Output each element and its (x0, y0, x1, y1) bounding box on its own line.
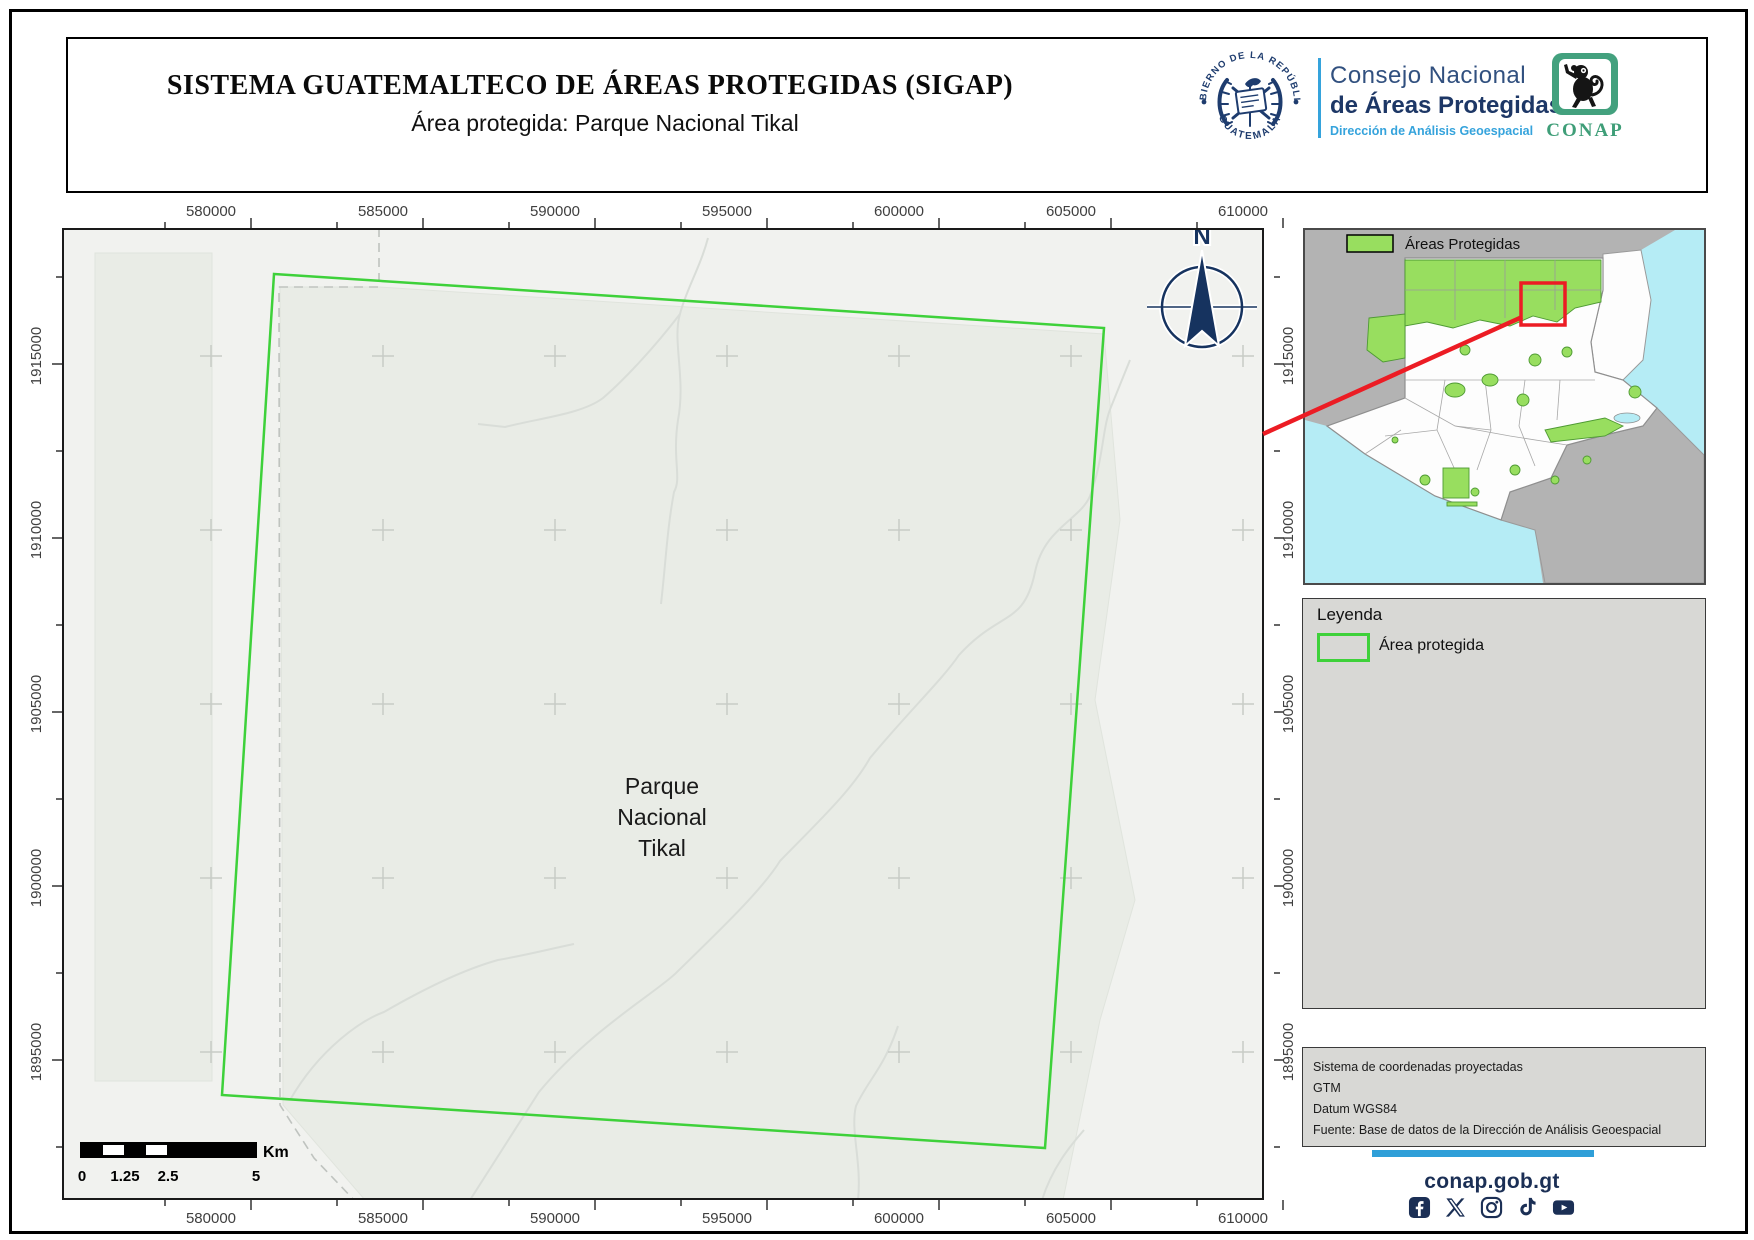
info-line: GTM (1313, 1078, 1705, 1099)
y-axis-label: 1900000 (28, 838, 44, 918)
y-axis-label-right: 1895000 (1280, 1012, 1296, 1092)
legend-item-label: Área protegida (1379, 637, 1484, 655)
info-line: Fuente: Base de datos de la Dirección de… (1313, 1120, 1705, 1141)
logo-divider (1318, 58, 1321, 138)
axis-ticks (40, 200, 1290, 1230)
youtube-icon[interactable] (1552, 1196, 1575, 1219)
website-link[interactable]: conap.gob.gt (1382, 1170, 1602, 1194)
x-axis-label-bottom: 590000 (515, 1210, 595, 1226)
x-axis-label-bottom: 610000 (1203, 1210, 1283, 1226)
org-name-line1: Consejo Nacional (1330, 62, 1526, 90)
x-axis-label: 605000 (1031, 203, 1111, 219)
x-axis-label-bottom: 605000 (1031, 1210, 1111, 1226)
inset-legend-label: Áreas Protegidas (1405, 236, 1520, 253)
coordinate-system-info: Sistema de coordenadas proyectadas GTM D… (1302, 1047, 1706, 1147)
page-title: SISTEMA GUATEMALTECO DE ÁREAS PROTEGIDAS… (70, 70, 1110, 102)
org-name-line2: de Áreas Protegidas (1330, 92, 1562, 120)
y-axis-label-right: 1905000 (1280, 664, 1296, 744)
org-subunit: Dirección de Análisis Geoespacial (1330, 124, 1533, 138)
info-line: Sistema de coordenadas proyectadas (1313, 1057, 1705, 1078)
y-axis-label-right: 1910000 (1280, 490, 1296, 570)
inset-legend-swatch (1347, 235, 1393, 252)
x-axis-label-bottom: 595000 (687, 1210, 767, 1226)
locator-leader-line (1245, 300, 1545, 450)
x-axis-label: 600000 (859, 203, 939, 219)
x-twitter-icon[interactable] (1444, 1196, 1467, 1219)
y-axis-label: 1915000 (28, 316, 44, 396)
conap-logo-icon (1552, 53, 1618, 117)
social-icons-row (1408, 1196, 1588, 1219)
tiktok-icon[interactable] (1516, 1196, 1539, 1219)
facebook-icon[interactable] (1408, 1196, 1431, 1219)
x-axis-label-bottom: 585000 (343, 1210, 423, 1226)
government-seal-icon: GOBIERNO DE LA REPÚBLICA GUATEMALA (1193, 40, 1307, 154)
x-axis-label: 580000 (171, 203, 251, 219)
x-axis-label: 610000 (1203, 203, 1283, 219)
legend-box: Leyenda Área protegida (1302, 598, 1706, 1009)
y-axis-label: 1910000 (28, 490, 44, 570)
legend-title: Leyenda (1317, 605, 1382, 625)
info-line: Datum WGS84 (1313, 1099, 1705, 1120)
y-axis-label: 1905000 (28, 664, 44, 744)
footer-accent-bar (1372, 1150, 1594, 1157)
protected-area-swatch (1317, 633, 1370, 662)
x-axis-label: 590000 (515, 203, 595, 219)
y-axis-label-right: 1900000 (1280, 838, 1296, 918)
instagram-icon[interactable] (1480, 1196, 1503, 1219)
x-axis-label-bottom: 600000 (859, 1210, 939, 1226)
x-axis-label-bottom: 580000 (171, 1210, 251, 1226)
conap-logo-text: CONAP (1543, 120, 1627, 142)
x-axis-label: 585000 (343, 203, 423, 219)
x-axis-label: 595000 (687, 203, 767, 219)
y-axis-label: 1895000 (28, 1012, 44, 1092)
page-subtitle: Área protegida: Parque Nacional Tikal (70, 110, 1140, 137)
